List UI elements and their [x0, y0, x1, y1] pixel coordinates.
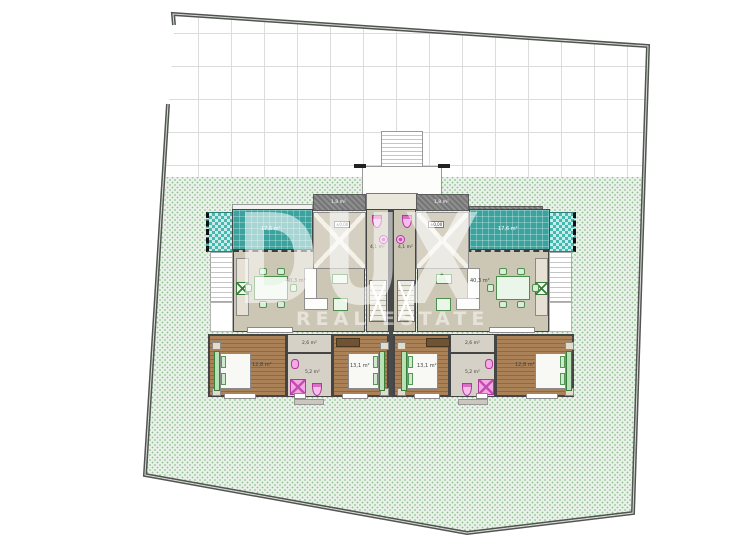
chair [532, 284, 539, 292]
chair [499, 268, 507, 275]
hallway-left-label: 2,6 m² [302, 342, 317, 347]
hallway-right-label: 2,6 m² [465, 342, 480, 347]
pillow [221, 373, 226, 385]
pillow [560, 373, 565, 385]
pillow [221, 356, 226, 368]
bed-headboard [401, 351, 407, 391]
chair [487, 284, 494, 292]
gate-post-left [354, 164, 366, 168]
nightstand [212, 342, 221, 350]
chair [517, 301, 525, 308]
toilet-icon [312, 383, 322, 396]
pillow [408, 373, 413, 385]
living-window-right [489, 327, 535, 333]
entrance-stairs [381, 131, 423, 167]
side-stairs-right [549, 252, 572, 302]
bedroom-outer-left-label: 12,8 m² [252, 363, 272, 368]
bathroom-right-label: 5,2 m² [465, 371, 480, 376]
pillow [373, 373, 378, 385]
sink-icon [485, 359, 493, 369]
site-plan: 17,6 m² 40,3 m² 1,8 m² ±0,00 4,1 m² 12,8 [0, 0, 740, 550]
plunge-pool-right [549, 212, 576, 252]
bathroom-left: 5,2 m² [287, 353, 332, 397]
watermark-tagline: REAL ESTATE [296, 310, 489, 329]
bedroom-outer-right: 12,8 m² [495, 334, 574, 397]
wardrobe [426, 338, 450, 347]
garden-step-left [294, 399, 324, 405]
bathroom-right: 5,2 m² [450, 353, 495, 397]
nightstand [565, 342, 574, 350]
chair [517, 268, 525, 275]
bedroom-window [414, 393, 440, 399]
bed-headboard [379, 351, 385, 391]
nightstand [397, 342, 406, 350]
wardrobe [336, 338, 360, 347]
side-path-left [210, 302, 233, 332]
bedroom-window [342, 393, 368, 399]
garden-step-right [458, 399, 488, 405]
side-path-right [549, 302, 572, 332]
nightstand [380, 342, 389, 350]
bedroom-inner-left: 13,1 m² [332, 334, 389, 397]
bedroom-inner-right-label: 13,1 m² [417, 364, 437, 369]
bedroom-inner-right: 13,1 m² [393, 334, 450, 397]
hallway-right: 2,6 m² [450, 334, 495, 353]
pillow [373, 356, 378, 368]
bedroom-outer-left: 12,8 m² [208, 334, 287, 397]
gate-post-right [438, 164, 450, 168]
pillow [560, 356, 565, 368]
dining-table [496, 276, 530, 300]
toilet-icon [462, 383, 472, 396]
chair [499, 301, 507, 308]
bedroom-window [526, 393, 558, 399]
hallway-left: 2,6 m² [287, 334, 332, 353]
bedroom-outer-right-label: 12,8 m² [515, 363, 535, 368]
sink-icon [291, 359, 299, 369]
pillow [408, 356, 413, 368]
terrace-right-label: 17,6 m² [498, 227, 518, 232]
watermark-brand: DUX [236, 198, 482, 323]
bathroom-left-label: 5,2 m² [305, 371, 320, 376]
bedroom-window [224, 393, 256, 399]
plunge-pool-left [206, 212, 233, 252]
bedroom-inner-left-label: 13,1 m² [350, 364, 370, 369]
bed-headboard [566, 351, 572, 391]
side-stairs-left [210, 252, 233, 302]
